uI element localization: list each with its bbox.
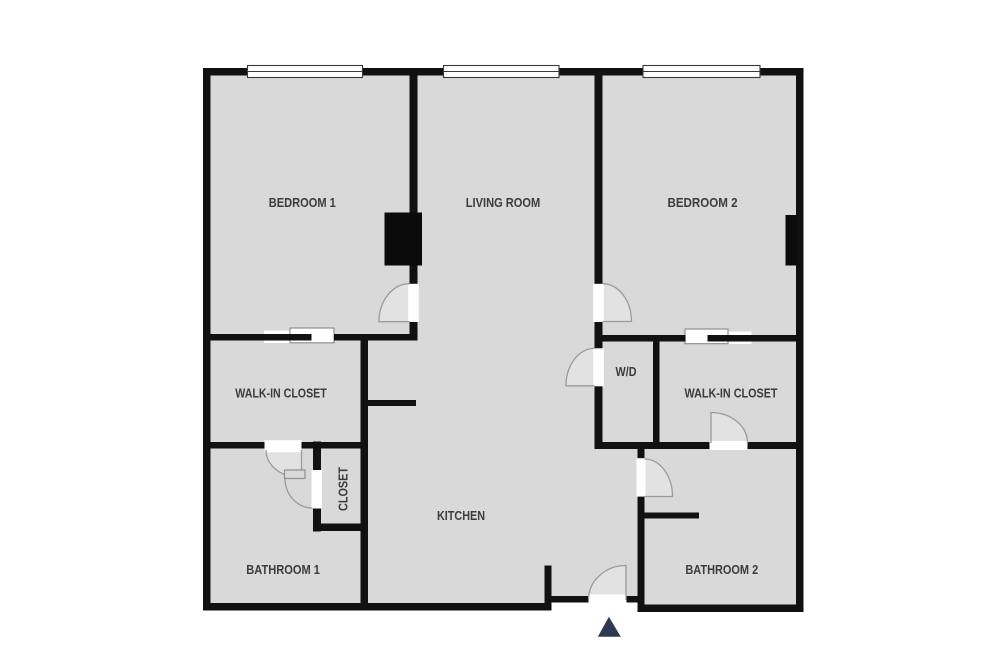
svg-text:WALK-IN CLOSET: WALK-IN CLOSET bbox=[685, 386, 778, 401]
svg-text:BATHROOM 2: BATHROOM 2 bbox=[685, 562, 758, 577]
svg-text:W/D: W/D bbox=[616, 364, 637, 379]
svg-text:CLOSET: CLOSET bbox=[335, 467, 350, 511]
svg-text:WALK-IN CLOSET: WALK-IN CLOSET bbox=[235, 385, 327, 400]
svg-text:BEDROOM 2: BEDROOM 2 bbox=[668, 195, 738, 210]
svg-text:BEDROOM 1: BEDROOM 1 bbox=[269, 195, 336, 210]
svg-text:LIVING ROOM: LIVING ROOM bbox=[466, 195, 541, 210]
svg-text:KITCHEN: KITCHEN bbox=[437, 508, 485, 523]
svg-text:BATHROOM 1: BATHROOM 1 bbox=[246, 562, 320, 577]
